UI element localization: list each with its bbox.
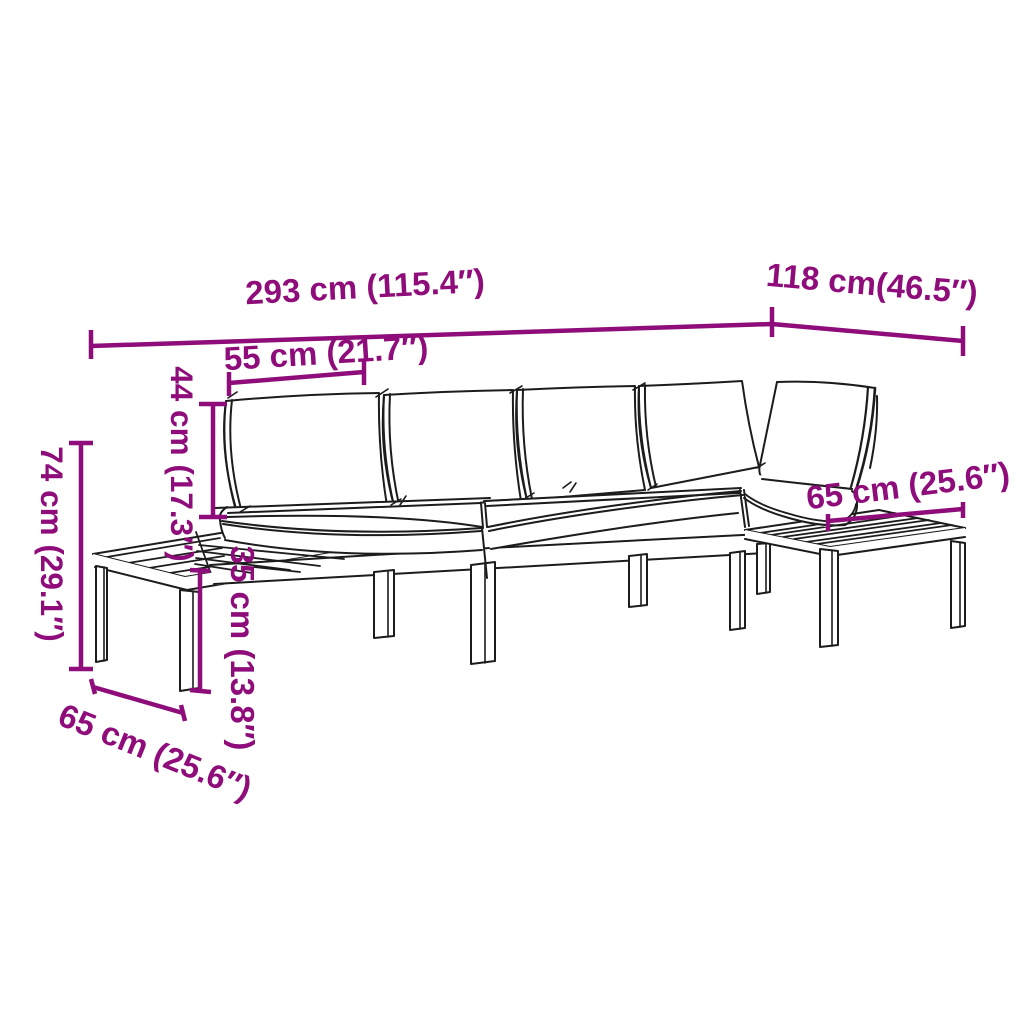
svg-text:35 cm (13.8″): 35 cm (13.8″) <box>224 546 261 751</box>
svg-text:44 cm (17.3″): 44 cm (17.3″) <box>164 366 200 561</box>
svg-text:74 cm (29.1″): 74 cm (29.1″) <box>34 446 70 641</box>
